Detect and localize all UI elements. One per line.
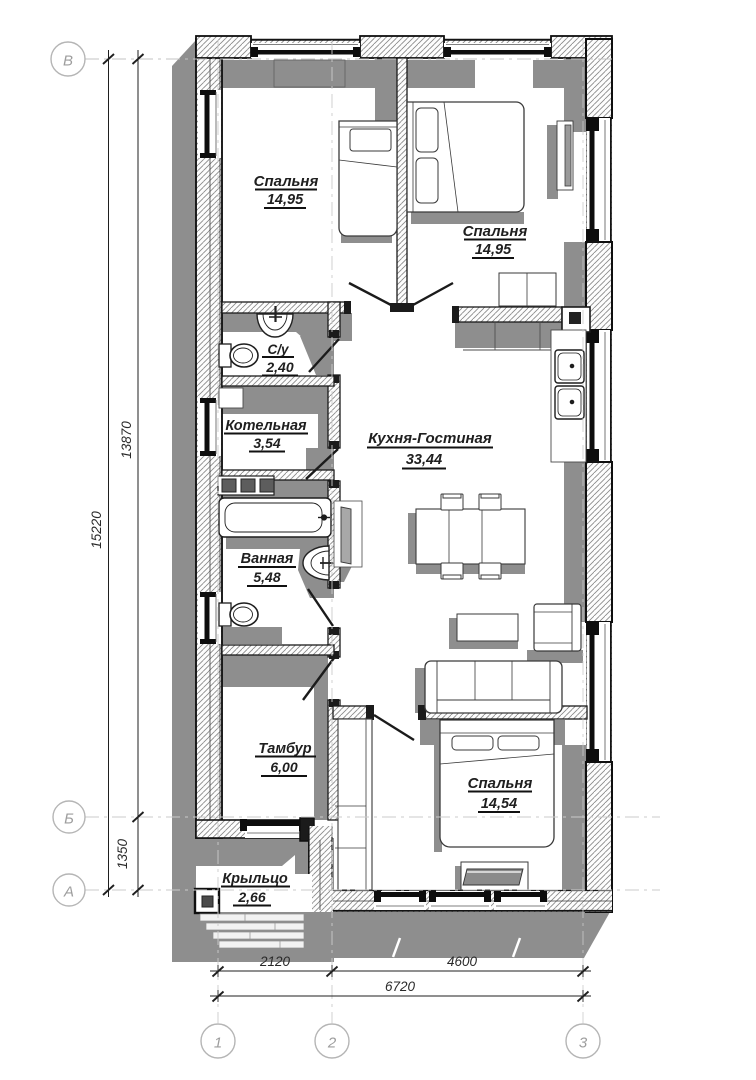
svg-text:5,48: 5,48 [253,569,280,585]
svg-text:15220: 15220 [89,511,104,549]
svg-text:1: 1 [214,1035,222,1052]
svg-text:Ванная: Ванная [241,551,294,567]
svg-text:Котельная: Котельная [225,418,307,434]
svg-text:4600: 4600 [447,954,478,969]
svg-text:Б: Б [64,811,74,828]
svg-text:14,54: 14,54 [481,796,517,812]
svg-text:14,95: 14,95 [475,242,512,258]
svg-text:33,44: 33,44 [406,452,442,468]
svg-text:6720: 6720 [385,979,416,994]
svg-text:6,00: 6,00 [270,759,297,775]
svg-text:Спальня: Спальня [254,173,319,190]
svg-text:2120: 2120 [259,954,291,969]
svg-text:Спальня: Спальня [463,223,528,240]
svg-text:2: 2 [327,1035,337,1052]
svg-text:В: В [63,53,73,70]
svg-text:1350: 1350 [115,838,130,869]
svg-text:14,95: 14,95 [267,192,304,208]
svg-text:13870: 13870 [119,421,134,459]
svg-text:Крыльцо: Крыльцо [222,871,288,887]
svg-text:Кухня-Гостиная: Кухня-Гостиная [368,430,492,447]
svg-text:Спальня: Спальня [468,775,533,792]
svg-text:А: А [63,884,74,901]
svg-text:2,66: 2,66 [237,889,265,905]
svg-text:3,54: 3,54 [253,435,280,451]
svg-text:Тамбур: Тамбур [258,741,311,757]
svg-text:2,40: 2,40 [265,359,293,375]
svg-text:3: 3 [579,1035,588,1052]
svg-text:С/у: С/у [267,342,290,357]
